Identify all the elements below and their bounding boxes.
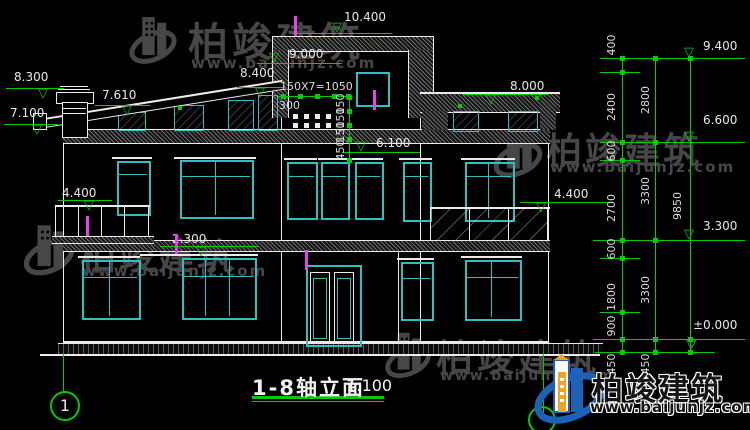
- dim-node: [347, 123, 352, 128]
- level-triangle-icon: ▽: [122, 105, 132, 116]
- vent-block: [326, 123, 331, 128]
- clerestory-window: [508, 111, 538, 132]
- axis-label: 1: [60, 396, 70, 415]
- level-triangle-icon: ▽: [269, 52, 279, 63]
- vent-block: [304, 123, 309, 128]
- vent-block: [315, 123, 320, 128]
- lintel: [399, 158, 432, 160]
- axis-bubble-1: 1: [50, 391, 80, 421]
- wall-pier: [540, 100, 556, 130]
- dim-line-outer: [690, 58, 691, 352]
- level-triangle-icon: ▽: [536, 202, 546, 213]
- level-value: 6.100: [376, 136, 410, 150]
- wall-inner: [398, 248, 399, 343]
- level-triangle-icon: ▽: [689, 341, 696, 349]
- ground-line: [40, 354, 600, 356]
- chimney-top-line: [58, 89, 90, 90]
- chimney-band: [62, 113, 86, 114]
- balcony-right-post: [469, 209, 470, 240]
- dim-node: [620, 256, 625, 261]
- level-triangle-icon: ▽: [38, 88, 48, 99]
- window-mullion: [117, 174, 147, 175]
- dim-node: [347, 109, 352, 114]
- window-2f-tower: [321, 162, 350, 220]
- wall-left: [63, 122, 64, 343]
- dim-300-label: 300: [279, 100, 300, 112]
- window-2f-left-narrow: [117, 161, 151, 216]
- balcony-right-post: [547, 209, 548, 240]
- level-triangle-icon: ▽: [332, 22, 342, 33]
- lintel: [397, 258, 434, 260]
- dim-value: 400: [606, 35, 618, 56]
- window-mullion: [491, 260, 492, 317]
- dim-node: [347, 158, 352, 163]
- dim-value: 900: [606, 316, 618, 337]
- chimney-band: [62, 108, 86, 109]
- dim-node: [620, 337, 625, 342]
- chimney-top-line: [60, 86, 88, 87]
- balcony-right-post: [430, 209, 431, 240]
- clerestory-window: [228, 100, 254, 131]
- dim-run-label: 150X7=1050: [280, 81, 353, 93]
- dim-node: [653, 337, 658, 342]
- level-triangle-icon: ▽: [356, 141, 366, 152]
- axis-line-1: [63, 353, 64, 391]
- dim-value: 600: [606, 239, 618, 260]
- window-1f-left-wide: [182, 258, 257, 320]
- window-mullion: [287, 176, 314, 177]
- balcony-right-post: [508, 209, 509, 240]
- dim-node: [620, 238, 625, 243]
- drawing-scale: 1:100: [346, 376, 392, 395]
- balcony-left-post: [78, 207, 79, 237]
- dim-node: [620, 56, 625, 61]
- dim-node: [347, 137, 352, 142]
- lintel: [352, 158, 383, 160]
- level-triangle-icon: ▽: [196, 246, 206, 257]
- level-value: 8.400: [240, 66, 274, 80]
- level-value: ±0.000: [693, 318, 737, 332]
- window-mullion: [465, 176, 511, 177]
- door-panel: [337, 278, 351, 339]
- balcony-left-rail: [55, 205, 150, 207]
- dim-value: 9850: [672, 192, 684, 220]
- window-mullion: [180, 176, 250, 177]
- brand-logo-url: www.baijunjz.com: [590, 398, 750, 416]
- clerestory-window: [258, 95, 278, 131]
- cad-elevation-drawing: 柏竣建筑 www.baijunjz.com 柏竣建筑 www.baijunjz.…: [0, 0, 750, 430]
- level-triangle-icon: ▽: [32, 124, 42, 135]
- clerestory-window: [453, 111, 479, 132]
- dim-node: [688, 337, 693, 342]
- dim-line-middle: [655, 58, 656, 352]
- revision-tick: [175, 234, 178, 254]
- dim-node: [347, 95, 352, 100]
- level-triangle-icon: ▽: [684, 131, 694, 142]
- dim-value: 450: [335, 140, 347, 161]
- dim-node: [620, 158, 625, 163]
- window-mullion: [229, 258, 230, 316]
- wall-pier: [422, 111, 448, 130]
- lintel: [78, 256, 140, 258]
- dim-node: [315, 94, 320, 99]
- dim-node: [653, 56, 658, 61]
- watermark-url: www.baijunjz.com: [550, 158, 735, 176]
- level-value: 10.400: [344, 10, 386, 24]
- door-panel: [313, 278, 327, 339]
- window-mullion: [205, 258, 206, 316]
- dim-value: 1800: [606, 283, 618, 311]
- balcony-left-post: [124, 207, 125, 237]
- node-dot: [458, 104, 462, 108]
- window-1f-right-wide: [465, 260, 522, 321]
- revision-tick: [305, 250, 308, 270]
- revision-tick: [373, 90, 376, 110]
- balcony-left-post: [148, 207, 149, 237]
- level-value: 9.000: [289, 47, 323, 61]
- lintel: [112, 157, 152, 159]
- level-triangle-icon: ▽: [684, 229, 694, 240]
- window-mullion: [321, 176, 346, 177]
- window-1f-left: [82, 260, 141, 320]
- dim-value: 600: [606, 141, 618, 162]
- node-dot: [535, 96, 539, 100]
- window-mullion: [403, 176, 428, 177]
- vent-block: [315, 114, 320, 119]
- lintel: [174, 157, 256, 159]
- revision-tick: [294, 16, 297, 36]
- level-value: 3.300: [703, 219, 737, 233]
- window-mullion: [465, 277, 518, 278]
- wall-right: [548, 110, 549, 343]
- revision-tick: [86, 216, 89, 236]
- vent-block: [293, 114, 298, 119]
- level-value: 8.300: [14, 70, 48, 84]
- window-mullion: [401, 278, 430, 279]
- dim-node: [620, 70, 625, 75]
- level-value: 6.600: [703, 113, 737, 127]
- balcony-left-slab: [52, 236, 154, 244]
- level-triangle-icon: ▽: [255, 87, 265, 98]
- window-mullion: [109, 260, 110, 316]
- balcony-left-post: [101, 207, 102, 237]
- watermark-logo-icon: [128, 12, 178, 70]
- balcony-left-post: [55, 207, 56, 237]
- vent-block: [293, 123, 298, 128]
- vent-block: [326, 114, 331, 119]
- window-2f-tower: [355, 162, 384, 220]
- level-triangle-icon: ▽: [486, 94, 496, 105]
- dim-value: 2400: [606, 93, 618, 121]
- window-2f-left-wide: [180, 160, 254, 219]
- window-mullion: [215, 160, 216, 215]
- lintel: [461, 158, 515, 160]
- brand-logo: 柏竣建筑 www.baijunjz.com: [528, 352, 750, 428]
- level-value: 7.100: [10, 106, 44, 120]
- window-2f-tower: [287, 162, 318, 220]
- level-value: 4.400: [554, 187, 588, 201]
- window-mullion: [82, 277, 137, 278]
- window-mullion: [355, 176, 380, 177]
- level-value: 9.400: [703, 39, 737, 53]
- dim-node: [653, 140, 658, 145]
- lintel: [461, 256, 522, 258]
- level-triangle-icon: ▽: [84, 200, 94, 211]
- dim-value: 2700: [606, 194, 618, 222]
- dim-node: [620, 140, 625, 145]
- dim-node: [620, 310, 625, 315]
- level-value: 7.610: [102, 88, 136, 102]
- dim-node: [688, 56, 693, 61]
- vent-block: [304, 114, 309, 119]
- dim-value: 2800: [640, 86, 652, 114]
- dim-value: 3300: [640, 276, 652, 304]
- window-2f-right-narrow: [403, 162, 432, 222]
- window-1f-right-narrow: [401, 262, 434, 321]
- node-dot: [178, 106, 182, 110]
- level-value: 8.000: [510, 79, 544, 93]
- dim-node: [653, 238, 658, 243]
- lintel: [284, 158, 317, 160]
- window-mullion: [182, 276, 253, 277]
- dim-line-inner: [622, 58, 623, 352]
- dim-value: 3300: [640, 177, 652, 205]
- balcony-right-glass: [431, 209, 548, 240]
